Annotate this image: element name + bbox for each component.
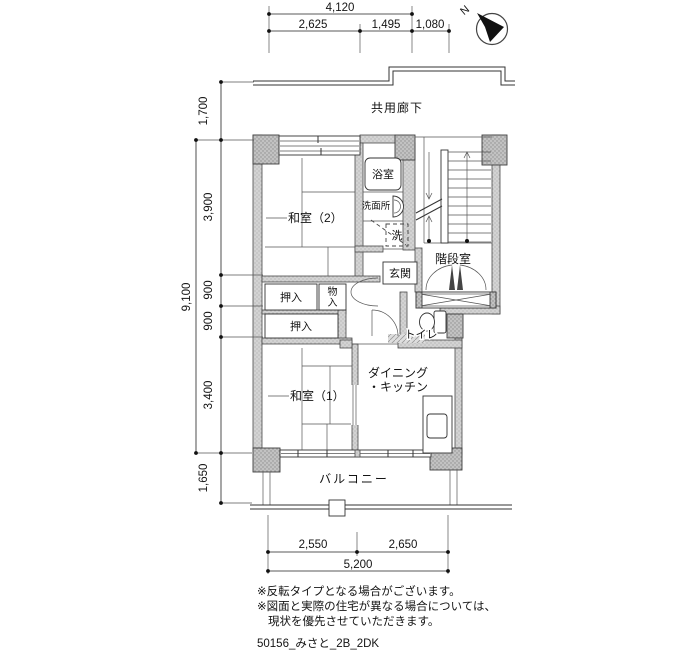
balcony-label: バルコニー: [319, 472, 389, 486]
wall-washer-bottom: [355, 246, 383, 252]
window-mullion: [355, 450, 360, 457]
column-top-mid: [395, 135, 415, 160]
dim-left-total: 9,100: [181, 283, 193, 312]
toilet-label: トイレ: [405, 329, 438, 341]
dim-top-seg3: 1,080: [416, 19, 445, 31]
closet-lower-label: 押入: [290, 319, 312, 333]
note-line-3: 現状を優先させていただきます。: [268, 614, 439, 628]
dim-top-seg2: 1,495: [372, 19, 401, 31]
kitchen-sink: [427, 414, 447, 438]
floor-plan-canvas: 4,120 2,625 1,495 1,080 N 共用廊下: [0, 0, 700, 650]
entrance-double-door: [426, 265, 486, 290]
wall-dk-top-left: [340, 340, 352, 348]
closet-upper-label: 押入: [280, 290, 302, 304]
balcony: バルコニー: [250, 470, 512, 516]
dim-left-seg2: 900: [203, 280, 215, 299]
closet-door-arc-bottom: [351, 292, 378, 306]
dimension-bottom: 2,550 2,650 5,200: [266, 515, 450, 574]
dining-kitchen: ダイニング ・キッチン: [368, 365, 452, 453]
balcony-divider: [329, 500, 345, 516]
entrance-porch-xbox: [416, 292, 496, 308]
column-top-left: [253, 135, 279, 164]
stairwell-label: 階段室: [435, 251, 471, 266]
drawing-code: 50156_みさと_2B_2DK: [257, 637, 379, 650]
column-bottom-left: [253, 448, 280, 472]
dim-top-seg1: 2,625: [299, 19, 328, 31]
dim-top-total: 4,120: [326, 2, 355, 14]
dim-bottom-total: 5,200: [344, 559, 373, 571]
bath-label: 浴室: [372, 167, 394, 181]
stair-divider: [441, 150, 448, 243]
washroom-label: 洗面所: [362, 200, 391, 212]
dining-label-1: ダイニング: [368, 365, 428, 380]
north-compass-icon: N: [458, 4, 507, 45]
wall-closet-top: [262, 276, 380, 282]
closets: 押入 物 入 押入: [265, 278, 378, 338]
note-line-1: ※反転タイプとなる場合がございます。: [257, 584, 461, 598]
wall-right-lower: [455, 338, 462, 455]
corridor-label: 共用廊下: [371, 100, 423, 115]
column-toilet-corner: [447, 314, 463, 338]
dim-left-balcony: 1,650: [198, 464, 210, 493]
washitsu2-label: 和室（2）: [288, 210, 343, 225]
dim-bottom-seg1: 2,550: [299, 539, 328, 551]
dim-left-corridor: 1,700: [198, 97, 210, 126]
washbasin: [393, 196, 404, 217]
entrance-label: 玄関: [389, 266, 411, 280]
floor-plan-page: 4,120 2,625 1,495 1,080 N 共用廊下: [0, 0, 700, 650]
dim-left-seg1: 3,900: [203, 193, 215, 222]
toilet-door-arc: [372, 310, 398, 336]
toilet-room: トイレ: [372, 310, 446, 341]
common-corridor: 共用廊下: [253, 67, 515, 115]
stair-treads: [448, 152, 491, 242]
washitsu1-label: 和室（1）: [290, 388, 345, 403]
dimension-left: 1,700 3,900 900 900 3,400 9,100 1,650: [181, 80, 263, 505]
wall-top-segment: [360, 135, 395, 143]
washitsu2: 和室（2）: [265, 158, 355, 276]
dim-left-seg4: 3,400: [203, 381, 215, 410]
dimension-top: 4,120 2,625 1,495 1,080: [267, 2, 451, 53]
wall-closet-mid: [262, 310, 346, 314]
column-top-right: [482, 135, 507, 165]
dim-bottom-seg2: 2,650: [389, 539, 418, 551]
notes: ※反転タイプとなる場合がございます。 ※図面と実際の住宅が異なる場合については、…: [257, 584, 496, 650]
storage-label-2: 入: [328, 298, 338, 309]
wall-left: [253, 135, 262, 448]
wall-washitsu1-top: [262, 338, 352, 344]
window-washitsu2: [279, 136, 360, 155]
washitsu1: 和室（1）: [268, 348, 359, 450]
storage-label-1: 物: [328, 285, 338, 298]
washer-label: 洗: [392, 229, 403, 242]
sliding-door-gap: [351, 385, 359, 425]
note-line-2: ※図面と実際の住宅が異なる場合については、: [257, 599, 496, 613]
north-label: N: [458, 4, 472, 18]
bath-area: 浴室 洗面所 洗: [362, 158, 408, 246]
dining-label-2: ・キッチン: [368, 380, 428, 394]
dim-left-seg3: 900: [203, 311, 215, 330]
